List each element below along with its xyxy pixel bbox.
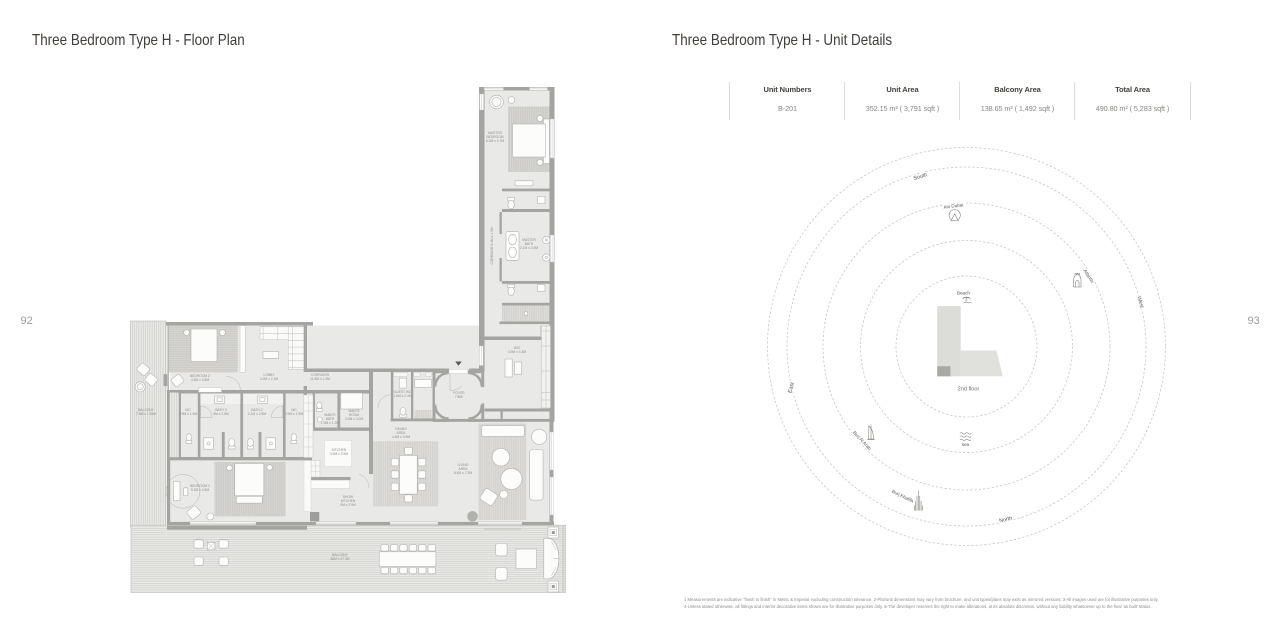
svg-text:0.9M x 1.9M: 0.9M x 1.9M (179, 412, 197, 416)
svg-text:2.1M x 2.9M: 2.1M x 2.9M (520, 246, 538, 250)
svg-text:CORRIDOR 6.4M x 1.3M: CORRIDOR 6.4M x 1.3M (490, 227, 494, 264)
svg-text:4.9M x 4.3M: 4.9M x 4.3M (508, 350, 526, 354)
svg-text:Ain Dubai: Ain Dubai (943, 202, 963, 209)
svg-text:3.9M x 3.5M: 3.9M x 3.5M (330, 452, 348, 456)
svg-text:9M x 2.9M: 9M x 2.9M (340, 503, 356, 507)
svg-text:8.4M x 7.3M: 8.4M x 7.3M (454, 471, 472, 475)
svg-text:6.2M x 4.7M: 6.2M x 4.7M (486, 139, 504, 143)
svg-text:sea: sea (962, 442, 970, 447)
svg-text:11.5M x 1.3M: 11.5M x 1.3M (310, 377, 330, 381)
svg-text:1.9M x 1.2M: 1.9M x 1.2M (321, 421, 339, 425)
svg-text:4.5M x 3.6M: 4.5M x 3.6M (191, 378, 209, 382)
svg-text:North: North (999, 516, 1013, 525)
svg-text:Burj Al Arab: Burj Al Arab (852, 430, 872, 451)
svg-text:5.2M x 4.5M: 5.2M x 4.5M (191, 488, 209, 492)
svg-text:Burj Khalifa: Burj Khalifa (891, 489, 915, 504)
svg-text:3M x 2.5M: 3M x 2.5M (213, 412, 229, 416)
svg-text:Atlantis: Atlantis (1082, 269, 1095, 285)
svg-text:West: West (1135, 296, 1144, 310)
svg-text:2.1M x 2.5M: 2.1M x 2.5M (248, 412, 266, 416)
svg-text:7.9M x 1.35M: 7.9M x 1.35M (136, 412, 156, 416)
svg-text:3.0M x 2.0M: 3.0M x 2.0M (345, 417, 363, 421)
svg-text:Beach: Beach (957, 291, 970, 296)
svg-text:56M x 27.3M: 56M x 27.3M (330, 557, 349, 561)
svg-text:4.4M x 3.9M: 4.4M x 3.9M (392, 435, 410, 439)
svg-text:1.6M x 2.4M: 1.6M x 2.4M (393, 394, 411, 398)
svg-text:East: East (787, 381, 796, 393)
svg-text:2nd floor: 2nd floor (958, 387, 980, 393)
svg-text:4.2M x 2.1M: 4.2M x 2.1M (260, 377, 278, 381)
svg-text:South: South (913, 172, 928, 182)
svg-text:0.9M x 1.9M: 0.9M x 1.9M (285, 412, 303, 416)
svg-text:7.5M²: 7.5M² (455, 395, 464, 399)
